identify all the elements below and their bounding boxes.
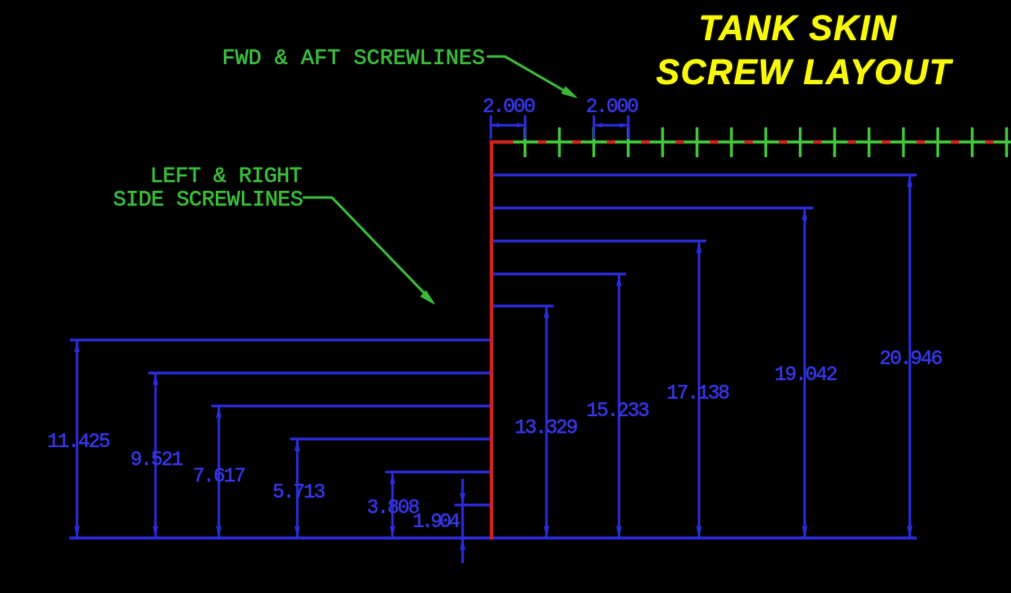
svg-text:LEFT & RIGHT: LEFT & RIGHT	[150, 164, 302, 189]
svg-text:2.000: 2.000	[586, 96, 638, 119]
svg-text:19.042: 19.042	[774, 364, 837, 387]
svg-text:2.000: 2.000	[483, 96, 535, 119]
svg-text:3.808: 3.808	[367, 497, 419, 520]
svg-text:SCREW LAYOUT: SCREW LAYOUT	[656, 53, 953, 92]
svg-text:20.946: 20.946	[879, 348, 942, 371]
svg-text:1.904: 1.904	[412, 511, 459, 534]
svg-text:SIDE SCREWLINES: SIDE SCREWLINES	[113, 188, 303, 213]
svg-text:13.329: 13.329	[515, 417, 578, 440]
svg-text:5.713: 5.713	[273, 482, 325, 505]
svg-text:17.138: 17.138	[666, 383, 729, 406]
svg-text:9.521: 9.521	[130, 449, 183, 472]
svg-text:15.233: 15.233	[586, 400, 649, 423]
svg-text:11.425: 11.425	[47, 431, 110, 454]
svg-text:FWD & AFT SCREWLINES: FWD & AFT SCREWLINES	[222, 46, 485, 71]
svg-text:7.617: 7.617	[193, 466, 245, 489]
svg-text:TANK SKIN: TANK SKIN	[699, 9, 898, 48]
